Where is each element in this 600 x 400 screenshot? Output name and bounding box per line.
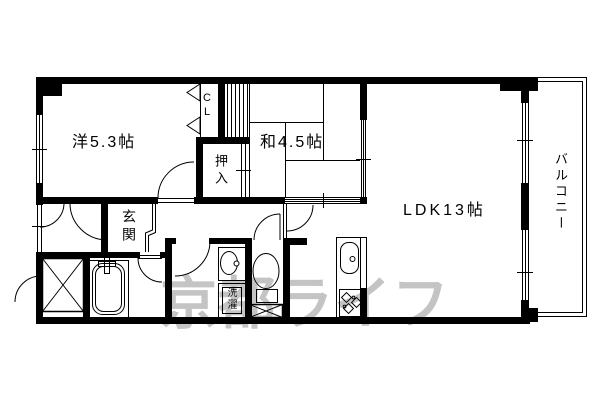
washbasin	[219, 248, 246, 281]
sliding-door-japanese-south	[285, 193, 360, 208]
laundry-label: 洗濯	[223, 287, 238, 311]
bathtub	[89, 255, 129, 318]
kitchen-sink	[341, 243, 359, 274]
japanese-room-label: 和4.5帖	[260, 128, 324, 152]
ldk-room-label: LDK13帖	[403, 196, 486, 220]
pipe-space	[250, 305, 283, 318]
entrance-door-opening	[32, 205, 46, 252]
hall-ldk-partition	[284, 204, 287, 238]
duct-hatch	[228, 84, 248, 137]
closet-label: CL	[201, 92, 213, 120]
closet-bifold-doors	[187, 84, 201, 137]
sliding-door-japanese-east	[356, 120, 371, 197]
window-left	[32, 115, 47, 183]
entrance-label: 玄関	[119, 209, 139, 245]
meter-box	[43, 259, 84, 312]
entrance-step	[146, 204, 156, 252]
western-room-label: 洋5.3帖	[72, 128, 136, 152]
floor-plan-drawing	[0, 0, 600, 400]
floorplan-canvas: 洋5.3帖 和4.5帖 LDK13帖 バルコニー CL 押入 玄関 洗濯 京都ラ…	[0, 0, 600, 400]
kitchen-unit	[337, 238, 368, 319]
oshiire-label: 押入	[211, 154, 230, 188]
balcony-label: バルコニー	[551, 152, 570, 232]
sliding-door-oshiire	[236, 144, 251, 197]
toilet	[253, 254, 279, 303]
